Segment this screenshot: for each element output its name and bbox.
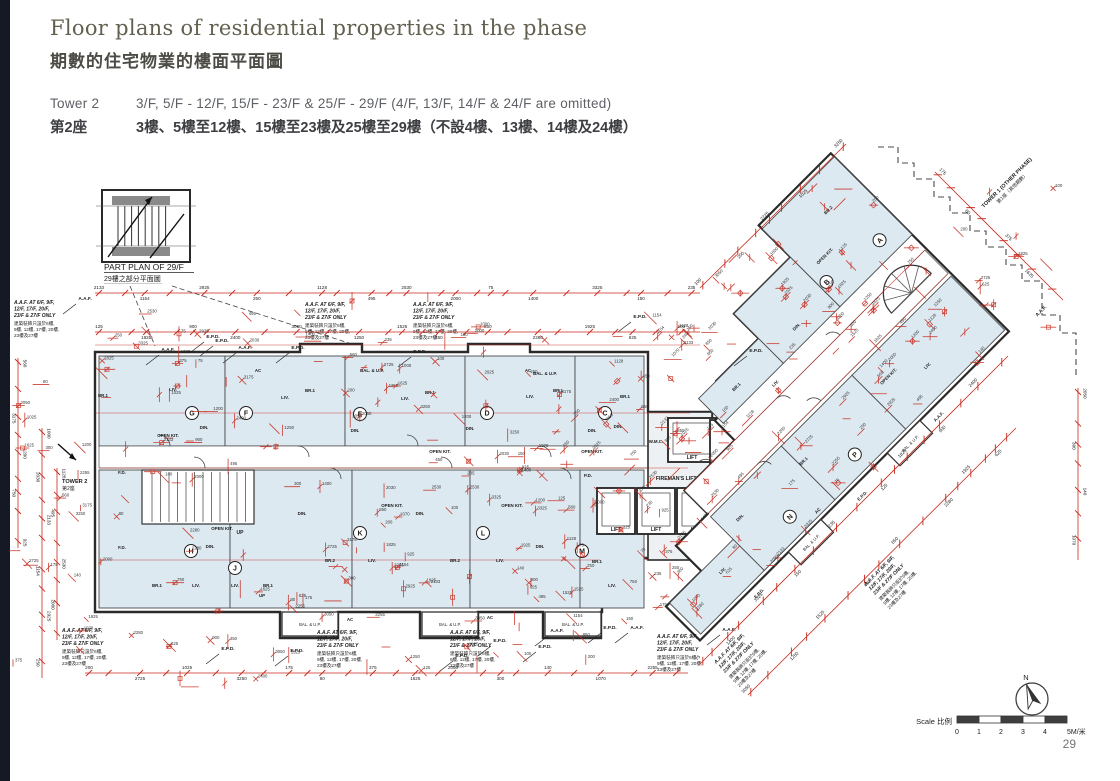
- unit-circle: G: [186, 407, 199, 420]
- note-zh: 建築裝飾只設於6樓,: [413, 322, 454, 329]
- red-tick: [667, 375, 674, 382]
- red-dimension-number: 2050: [362, 411, 372, 416]
- dimension-number: 1070: [1072, 535, 1077, 546]
- red-dimension-number: 1000: [402, 363, 412, 368]
- dimension-chain: 20503001401070: [1072, 388, 1088, 560]
- red-dimension-number: 560: [350, 352, 358, 357]
- dimension-number: 1925: [961, 464, 972, 475]
- note-en: 12/F, 17/F, 20/F,: [450, 636, 485, 642]
- red-dimension-number: 925: [407, 551, 415, 556]
- up-label: UP: [237, 530, 245, 536]
- room-label-br1: BR.1: [305, 388, 316, 393]
- red-annotation-cluster: [669, 335, 674, 340]
- red-dimension-number: 100: [524, 651, 532, 656]
- red-dimension-number: 1400: [306, 331, 316, 336]
- tower1-label-group: TOWER 1 (OTHER PHASE)第1座（其他期數）: [981, 157, 1039, 215]
- red-dimension-number: 1070: [400, 512, 410, 517]
- red-dimension-number: 2000: [194, 474, 204, 479]
- dimension-number: 2050: [448, 665, 459, 670]
- dimension-number: 3250: [237, 676, 248, 681]
- unit-letter: J: [233, 566, 237, 573]
- dimension-number: 235: [688, 285, 696, 290]
- red-annotation-cluster: 200: [586, 654, 596, 665]
- red-dimension-number: 150: [626, 616, 634, 621]
- dimension-number: 2400: [968, 377, 979, 388]
- aaf-note: A.A.F. AT 6/F, 9/F,12/F, 17/F, 20/F,23/F…: [61, 628, 107, 667]
- dimension-number: 2280: [943, 497, 954, 508]
- room-label-br1: BR.1: [152, 583, 163, 588]
- dimension-number: 1154: [140, 296, 150, 301]
- dimension-number: 450: [435, 335, 443, 340]
- red-dimension-number: 2925: [485, 369, 495, 374]
- scale-segment: [1001, 716, 1023, 723]
- red-dimension-number: 1625: [398, 380, 408, 385]
- dimension-number: 3175: [12, 413, 17, 424]
- red-dimension-number: 250: [530, 369, 538, 374]
- red-annotation-cluster: 1525: [289, 647, 301, 663]
- red-dimension-number: 2030: [707, 320, 718, 331]
- red-annotation-cluster: 1925: [1008, 251, 1028, 259]
- aaf-label: A.A.F.: [1034, 304, 1048, 318]
- red-tick: [294, 310, 300, 316]
- red-dimension-number: 625: [171, 641, 179, 646]
- room-label-din: DIN.: [588, 428, 597, 433]
- unit-room: [465, 356, 575, 446]
- dimension-number: 2000: [451, 296, 462, 301]
- dimension-number: 2400: [230, 335, 241, 340]
- dimension-number: 1250: [789, 650, 800, 661]
- dimension-number: 750: [12, 489, 17, 497]
- red-dimension-number: 125: [423, 665, 431, 670]
- scale-segment: [1023, 716, 1045, 723]
- red-annotation-cluster: [743, 251, 756, 264]
- red-annotation-cluster: [1041, 325, 1057, 329]
- dimension-number: 250: [253, 296, 261, 301]
- red-dimension-number: 75: [198, 358, 203, 363]
- red-dimension-number: 3250: [76, 511, 86, 516]
- red-dimension-number: 3175: [347, 537, 357, 542]
- note-en: 12/F, 17/F, 20/F,: [317, 636, 352, 642]
- room-label-din: DIN.: [416, 511, 425, 516]
- red-annotation-cluster: 80: [33, 379, 50, 385]
- red-annotation-cluster: [727, 340, 736, 349]
- red-dimension-number: 900: [212, 635, 220, 640]
- red-dimension-number: 3175: [562, 389, 572, 394]
- dimension-number: 625: [629, 335, 637, 340]
- red-dimension-number: 2400: [237, 415, 247, 420]
- red-dimension-number: 235: [467, 470, 475, 475]
- red-dimension-number: 2133: [164, 437, 174, 442]
- red-annotation-cluster: 140: [68, 572, 82, 581]
- note-zh: 建築裝飾只設於6樓,: [450, 650, 491, 657]
- red-dimension-number: 560: [62, 493, 70, 498]
- red-dimension-number: 140: [74, 572, 82, 577]
- note-zh: 9樓, 12樓, 17樓, 20樓,: [657, 660, 702, 667]
- room-label-liv: LIV.: [368, 558, 376, 563]
- dimension-number: 900: [189, 324, 197, 329]
- dimension-number: 250: [36, 659, 41, 667]
- red-annotation-cluster: 2030: [701, 320, 722, 341]
- aaf-label: A.A.F.: [161, 347, 174, 353]
- aaf-label: A.A.F.: [550, 628, 563, 634]
- leader-line: [63, 304, 76, 314]
- dimension-number: 2133: [94, 285, 105, 290]
- dimension-number: 560: [23, 360, 28, 368]
- red-dimension-number: 3250: [510, 430, 520, 435]
- unit-letter: L: [481, 531, 486, 538]
- aaf-note: A.A.F. AT 6/F, 9/F,12/F, 17/F, 20/F,23/F…: [449, 630, 495, 669]
- red-dimension-number: 200: [348, 388, 356, 393]
- red-dimension-number: 3325: [492, 494, 502, 499]
- note-en: 23/F & 27/F ONLY: [656, 647, 699, 653]
- red-dimension-number: 140: [517, 566, 525, 571]
- note-en: A.A.F. AT 6/F, 9/F,: [316, 630, 357, 636]
- dimension-number: 140: [1083, 488, 1088, 496]
- red-annotation-cluster: 1154: [644, 312, 662, 324]
- dimension-number: 1625: [1024, 268, 1035, 279]
- red-dimension-number: 1200: [462, 414, 472, 419]
- aaf-label: A.A.F.: [238, 345, 251, 351]
- red-dimension-number: 1070: [539, 443, 549, 448]
- room-label-din: DIN.: [206, 544, 215, 549]
- red-dimension-number: 1000: [769, 246, 780, 257]
- epd-label: E.P.D.: [538, 644, 551, 650]
- room-label-pd: P.D.: [584, 473, 592, 478]
- red-annotation-cluster: 1200: [74, 442, 92, 453]
- room-label-fd: F.D.: [118, 545, 126, 550]
- red-dimension-number: 1625: [260, 586, 270, 591]
- aaf-note: A.A.F. AT 6/F, 9/F,12/F, 17/F, 20/F,23/F…: [13, 300, 59, 339]
- red-annotation-cluster: [294, 310, 300, 316]
- red-dimension-number: 375: [179, 358, 187, 363]
- red-annotation-cluster: 375: [13, 658, 23, 667]
- note-zh: 建築裝飾只設於6樓,: [62, 648, 103, 655]
- lift-label: LIFT: [687, 455, 698, 461]
- red-dimension-number: 300: [45, 445, 53, 450]
- red-dimension-number: 2133: [684, 340, 694, 345]
- red-dimension-number: 2725: [29, 558, 39, 563]
- red-dimension-number: 850: [704, 337, 713, 346]
- red-dimension-number: 150: [518, 451, 526, 456]
- epd-label: E.P.D.: [206, 334, 219, 340]
- red-dimension-number: 1925: [426, 577, 436, 582]
- red-dimension-number: 175: [50, 562, 58, 567]
- red-dimension-number: 2255: [375, 612, 385, 617]
- red-annotation-cluster: 1925: [84, 614, 98, 622]
- red-annotation-cluster: 1250: [405, 654, 421, 663]
- aaf-note: A.A.F. AT 6/F, 9/F,12/F, 17/F, 20/F,23/F…: [656, 634, 702, 673]
- red-dimension-number: 1525: [574, 587, 584, 592]
- red-dimension-number: 3325: [537, 505, 547, 510]
- dimension-chain: 2002725102532501758037516252050300140107…: [85, 665, 688, 681]
- red-dimension-number: 2280: [192, 546, 202, 551]
- red-annotation-cluster: [667, 375, 674, 382]
- balcony-label: BAL. & U.P.: [299, 622, 321, 627]
- red-dimension-number: 560: [641, 404, 649, 409]
- red-annotation-cluster: 625: [978, 279, 990, 294]
- tower2-label-en: TOWER 2: [62, 479, 87, 485]
- red-dimension-number: 375: [15, 658, 23, 663]
- aaf-label: A.A.F.: [78, 296, 91, 302]
- room-label-open_kit: OPEN KIT.: [501, 503, 522, 508]
- red-annotation-cluster: 300: [37, 445, 53, 451]
- red-dimension-number: 1025: [171, 390, 181, 395]
- note-zh: 9樓, 12樓, 17樓, 20樓,: [413, 328, 458, 335]
- dimension-number: 495: [51, 509, 56, 517]
- epd-label: E.P.D.: [493, 638, 506, 644]
- red-dimension-number: 1128: [567, 536, 577, 541]
- red-dimension-number: 75: [181, 328, 186, 333]
- scale-segment: [979, 716, 1001, 723]
- dimension-number: 2925: [47, 611, 52, 622]
- red-dimension-number: 1925: [521, 543, 531, 548]
- red-dimension-number: 2030: [250, 338, 260, 343]
- red-dimension-number: 3050: [475, 616, 485, 621]
- note-en: 23/F & 27/F ONLY: [304, 315, 347, 321]
- red-dimension-number: 2925: [199, 329, 209, 334]
- red-dimension-number: 2000: [103, 556, 113, 561]
- red-annotation-cluster: 175: [653, 602, 668, 610]
- room-label-liv: LIV.: [281, 395, 289, 400]
- red-dimension-number: 2280: [190, 528, 200, 533]
- red-dimension-number: 1200: [535, 497, 545, 502]
- red-dimension-number: 750: [587, 563, 595, 568]
- note-zh: 建築裝飾只設於6樓,: [657, 654, 698, 661]
- tower1-label-en: TOWER 1 (OTHER PHASE): [981, 157, 1034, 210]
- red-dimension-number: 850: [583, 632, 591, 637]
- room-label-br2: BR.2: [450, 558, 461, 563]
- dimension-number: 1128: [317, 285, 327, 290]
- dimension-number: 1000: [47, 428, 52, 439]
- red-dimension-number: 2280: [133, 630, 143, 635]
- note-zh: 23樓及27樓: [62, 660, 86, 667]
- aaf-note: A.A.F. AT 6/F, 9/F,12/F, 17/F, 20/F,23/F…: [862, 551, 922, 611]
- scale-tick-label: 1: [977, 729, 981, 736]
- note-en: 12/F, 17/F, 20/F,: [657, 640, 692, 646]
- red-annotation-cluster: 235: [648, 571, 662, 581]
- red-dimension-number: 2050: [21, 400, 31, 405]
- epd-label: E.P.D.: [291, 345, 304, 351]
- dimension-number: 300: [1072, 442, 1077, 450]
- red-dimension-number: 235: [654, 571, 662, 576]
- red-dimension-number: 495: [230, 461, 238, 466]
- note-en: A.A.F. AT 6/F, 9/F,: [656, 634, 697, 640]
- note-en: 12/F, 17/F, 20/F,: [413, 308, 448, 314]
- red-annotation-cluster: 2000: [468, 328, 485, 334]
- dimension-number: 2925: [199, 285, 210, 290]
- dimension-number: 1128: [62, 469, 67, 479]
- dimension-number: 495: [368, 296, 376, 301]
- red-dimension-number: 850: [677, 428, 685, 433]
- red-dimension-number: 1825: [104, 355, 114, 360]
- red-dimension-number: 1000: [595, 500, 605, 505]
- red-annotation-cluster: 100: [1051, 183, 1063, 191]
- red-annotation-cluster: 1154: [649, 324, 668, 343]
- dimension-chain: 2133115429252501128495253020007514003325…: [94, 285, 700, 301]
- dimension-number: 175: [285, 665, 293, 670]
- red-annotation-cluster: [1014, 233, 1019, 240]
- note-zh: 建築裝飾只設於6樓,: [317, 650, 358, 657]
- red-dimension-number: 3050: [324, 612, 334, 617]
- dimension-number: 3050: [292, 324, 303, 329]
- dimension-number: 140: [544, 665, 552, 670]
- note-zh: 23樓及27樓: [413, 334, 437, 341]
- floor-plan-drawing: PART PLAN OF 29/F29樓之部分平面圖LIFTLIFTLIFTLI…: [0, 0, 1120, 781]
- red-dimension-number: 1200: [213, 406, 223, 411]
- leader-line: [707, 635, 720, 645]
- note-zh: 9樓, 12樓, 17樓, 20樓,: [62, 654, 107, 661]
- dimension-number: 1400: [528, 296, 539, 301]
- red-annotation-cluster: [350, 292, 355, 310]
- epd-label: E.P.D.: [603, 625, 616, 631]
- red-dimension-number: 925: [661, 508, 669, 513]
- red-dimension-number: 2925: [405, 583, 415, 588]
- red-dimension-number: 1154: [652, 312, 662, 317]
- note-zh: 9樓, 12樓, 17樓, 20樓,: [317, 656, 362, 663]
- red-annotation-cluster: [725, 282, 736, 293]
- red-dimension-number: 200: [385, 520, 393, 525]
- red-dimension-number: 3250: [421, 404, 431, 409]
- red-dimension-number: 1525: [291, 649, 301, 654]
- dimension-number: 2000: [51, 600, 56, 611]
- epd-label: E.P.D.: [633, 314, 646, 320]
- red-annotation-cluster: 2280: [129, 630, 144, 638]
- red-dimension-number: 1128: [679, 323, 689, 328]
- room-label-din: DIN.: [466, 426, 475, 431]
- room-label-din: DIN.: [351, 428, 360, 433]
- red-dimension-number: 2030: [386, 485, 396, 490]
- red-dimension-number: 1154: [655, 324, 666, 335]
- unit-letter: K: [357, 531, 362, 538]
- aaf-note: A.A.F. AT 6/F, 9/F,12/F, 17/F, 20/F,23/F…: [712, 629, 772, 689]
- red-dimension-number: 2530: [432, 485, 442, 490]
- red-dimension-number: 1000: [480, 321, 490, 326]
- dimension-number: 200: [85, 665, 93, 670]
- north-label: N: [1023, 673, 1028, 682]
- red-annotation-cluster: [222, 678, 227, 689]
- room-label-fd: F.D.: [118, 470, 126, 475]
- red-dimension-number: 1154: [573, 613, 583, 618]
- red-dimension-number: 125: [623, 524, 631, 529]
- red-annotation-cluster: [720, 282, 729, 291]
- dimension-number: 80: [320, 676, 326, 681]
- red-dimension-number: 235: [385, 337, 393, 342]
- red-annotation-cluster: [660, 594, 669, 599]
- part-plan-title-en: PART PLAN OF 29/F: [104, 262, 184, 272]
- dimension-number: 2030: [36, 472, 41, 483]
- room-label-liv: LIV.: [231, 583, 239, 588]
- red-annotation-cluster: 3050: [712, 268, 728, 284]
- red-dimension-number: 175: [305, 595, 313, 600]
- red-annotation-cluster: 1025: [22, 413, 37, 428]
- red-annotation-cluster: [580, 552, 585, 557]
- unit-room: [225, 356, 345, 446]
- red-dimension-number: 2530: [147, 308, 157, 313]
- dimension-number: 235: [827, 519, 836, 528]
- red-annotation-cluster: 900: [206, 635, 220, 645]
- red-dimension-number: 2400: [609, 397, 619, 402]
- aaf-label: A.A.F.: [630, 625, 643, 631]
- red-dimension-number: 495: [249, 311, 257, 316]
- red-dimension-number: 450: [643, 373, 651, 378]
- red-dimension-number: 75: [579, 542, 584, 547]
- room-label-br2: BR.2: [325, 558, 336, 563]
- red-dimension-number: 1825: [386, 542, 396, 547]
- dimension-number: 1525: [397, 324, 408, 329]
- room-label-din: DIN.: [536, 544, 545, 549]
- red-dimension-number: 1025: [181, 349, 191, 354]
- red-dimension-number: 1925: [1018, 251, 1028, 256]
- red-dimension-number: 1400: [521, 467, 531, 472]
- corridor: [99, 446, 648, 468]
- red-dimension-number: 1070: [84, 625, 94, 630]
- scale-segment: [1045, 716, 1067, 723]
- red-dimension-number: 750: [177, 577, 185, 582]
- red-dimension-number: 2255: [295, 603, 305, 608]
- dimension-number: 2530: [401, 285, 412, 290]
- red-dimension-number: 3050: [275, 649, 285, 654]
- dimension-number: 75: [488, 285, 494, 290]
- dimension-number: 125: [95, 324, 103, 329]
- red-dimension-number: 560: [568, 505, 576, 510]
- red-dimension-number: 375: [665, 549, 673, 554]
- red-dimension-number: 3325: [138, 341, 148, 346]
- red-dimension-number: 1070: [670, 347, 681, 358]
- red-annotation-cluster: 150: [621, 616, 634, 624]
- dimension-number: 850: [890, 536, 899, 545]
- red-annotation-cluster: [731, 284, 749, 302]
- note-en: A.A.F. AT 6/F, 9/F,: [304, 302, 345, 308]
- unit-circle: J: [229, 562, 242, 575]
- note-zh: 23樓及27樓: [317, 662, 341, 669]
- red-dimension-number: 625: [982, 281, 990, 286]
- dimension-number: 1250: [354, 335, 365, 340]
- red-dimension-number: 100: [451, 505, 459, 510]
- dimension-chain: 56031751200750925: [12, 358, 28, 548]
- red-annotation-cluster: 3250: [69, 511, 86, 522]
- red-annotation-cluster: 100: [517, 651, 532, 662]
- scale-tick-label: 3: [1021, 729, 1025, 736]
- red-dimension-number: 900: [195, 437, 203, 442]
- part-plan-landing: [112, 247, 170, 256]
- red-annotation-cluster: 75: [177, 326, 186, 341]
- red-annotation-cluster: 235: [378, 337, 393, 345]
- red-dimension-number: 80: [119, 511, 124, 516]
- red-dimension-number: 2725: [384, 362, 394, 367]
- red-annotation-cluster: 250: [108, 333, 123, 341]
- red-annotation-cluster: [703, 478, 709, 484]
- dimension-number: 1625: [410, 676, 421, 681]
- red-dimension-number: 2400: [258, 673, 268, 678]
- red-dimension-number: 300: [348, 576, 356, 581]
- red-dimension-number: 250: [115, 333, 123, 338]
- red-dimension-number: 495: [538, 594, 546, 599]
- red-dimension-number: 3175: [244, 375, 254, 380]
- red-dimension-number: 900: [531, 577, 539, 582]
- dimension-number: 375: [369, 665, 377, 670]
- room-label-din: DIN.: [298, 511, 307, 516]
- red-dimension-number: 100: [437, 356, 445, 361]
- room-label-liv: LIV.: [608, 583, 616, 588]
- note-en: A.A.F. AT 6/F, 9/F,: [13, 300, 54, 306]
- room-label-liv: LIV.: [526, 394, 534, 399]
- red-dimension-number: 140: [165, 472, 173, 477]
- note-zh: 建築裝飾只設於6樓,: [305, 322, 346, 329]
- dimension-number: 3325: [592, 285, 603, 290]
- red-dimension-number: 2030: [499, 451, 509, 456]
- scale-tick-label: 4: [1043, 729, 1047, 736]
- note-en: 23/F & 27/F ONLY: [13, 313, 56, 319]
